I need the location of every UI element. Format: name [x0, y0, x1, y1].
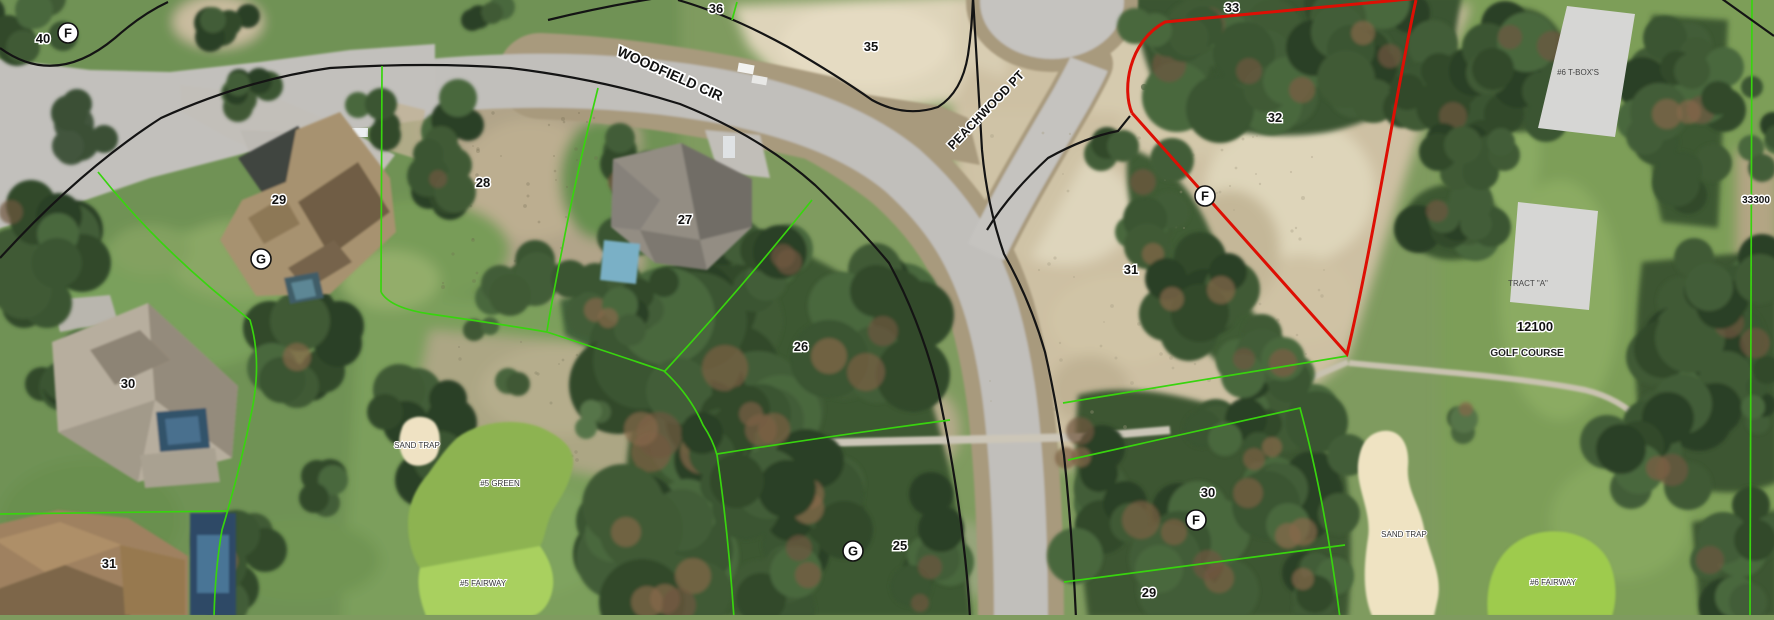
- svg-text:29: 29: [1142, 585, 1156, 600]
- svg-text:33: 33: [1225, 0, 1239, 15]
- svg-text:TRACT "A": TRACT "A": [1508, 279, 1548, 288]
- svg-text:31: 31: [1124, 262, 1138, 277]
- svg-text:#6 FAIRWAY: #6 FAIRWAY: [1530, 578, 1577, 587]
- svg-text:GOLF COURSE: GOLF COURSE: [1490, 348, 1564, 359]
- svg-text:G: G: [256, 252, 266, 267]
- svg-text:30: 30: [121, 376, 135, 391]
- svg-text:26: 26: [794, 339, 808, 354]
- svg-text:SAND TRAP: SAND TRAP: [1381, 530, 1427, 539]
- svg-text:SAND TRAP: SAND TRAP: [394, 441, 440, 450]
- svg-text:35: 35: [864, 39, 878, 54]
- svg-text:F: F: [1192, 513, 1200, 528]
- svg-text:29: 29: [272, 192, 286, 207]
- svg-text:F: F: [1201, 189, 1209, 204]
- svg-text:36: 36: [709, 1, 723, 16]
- svg-text:28: 28: [476, 175, 490, 190]
- svg-text:12100: 12100: [1517, 319, 1553, 334]
- svg-text:30: 30: [1201, 485, 1215, 500]
- svg-text:40: 40: [36, 31, 50, 46]
- svg-text:31: 31: [102, 556, 116, 571]
- svg-text:25: 25: [893, 538, 907, 553]
- svg-text:27: 27: [678, 212, 692, 227]
- svg-text:#6 T-BOX'S: #6 T-BOX'S: [1557, 68, 1599, 77]
- svg-text:F: F: [64, 26, 72, 41]
- svg-text:32: 32: [1268, 110, 1282, 125]
- svg-text:G: G: [848, 544, 858, 559]
- svg-text:#5 FAIRWAY: #5 FAIRWAY: [460, 579, 507, 588]
- svg-text:33300: 33300: [1742, 195, 1770, 206]
- svg-text:#5 GREEN: #5 GREEN: [480, 479, 520, 488]
